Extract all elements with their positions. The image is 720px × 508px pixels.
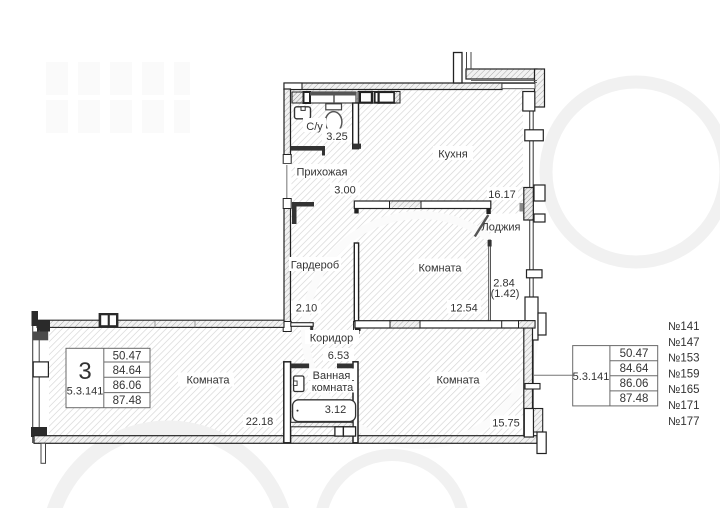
svg-text:16.17: 16.17 (488, 189, 516, 201)
svg-text:3.00: 3.00 (334, 185, 355, 197)
svg-text:15.75: 15.75 (492, 418, 520, 430)
svg-text:Ванная: Ванная (313, 370, 351, 382)
svg-text:5.3.141: 5.3.141 (67, 386, 104, 398)
svg-text:86.06: 86.06 (620, 378, 649, 390)
svg-text:Прихожая: Прихожая (297, 167, 348, 179)
svg-text:Комната: Комната (418, 263, 462, 275)
svg-text:Кухня: Кухня (438, 149, 467, 161)
svg-text:№165: №165 (668, 384, 700, 396)
svg-text:Комната: Комната (436, 375, 480, 387)
svg-text:№171: №171 (668, 400, 700, 412)
svg-text:3: 3 (78, 358, 91, 385)
svg-text:86.06: 86.06 (113, 380, 142, 392)
svg-text:№147: №147 (668, 337, 700, 349)
svg-text:Комната: Комната (186, 375, 230, 387)
svg-text:№177: №177 (668, 416, 700, 428)
svg-text:22.18: 22.18 (246, 416, 274, 428)
svg-text:84.64: 84.64 (620, 363, 649, 375)
svg-text:5.3.141: 5.3.141 (573, 371, 610, 383)
svg-text:Гардероб: Гардероб (291, 260, 339, 272)
svg-text:84.64: 84.64 (113, 365, 142, 377)
svg-text:комната: комната (312, 382, 354, 394)
svg-text:50.47: 50.47 (620, 348, 649, 360)
svg-text:50.47: 50.47 (113, 351, 142, 363)
svg-text:3.12: 3.12 (325, 404, 346, 416)
svg-text:(1.42): (1.42) (491, 288, 520, 300)
svg-text:3.25: 3.25 (326, 131, 347, 143)
svg-text:№153: №153 (668, 353, 700, 365)
svg-text:Коридор: Коридор (310, 333, 353, 345)
svg-text:№159: №159 (668, 368, 700, 380)
svg-text:2.10: 2.10 (296, 303, 317, 315)
svg-text:Лоджия: Лоджия (482, 222, 521, 234)
svg-text:С/у: С/у (306, 121, 323, 133)
svg-text:87.48: 87.48 (113, 395, 142, 407)
svg-text:12.54: 12.54 (450, 303, 478, 315)
svg-text:№141: №141 (668, 321, 700, 333)
svg-text:6.53: 6.53 (328, 350, 349, 362)
svg-text:87.48: 87.48 (620, 393, 649, 405)
